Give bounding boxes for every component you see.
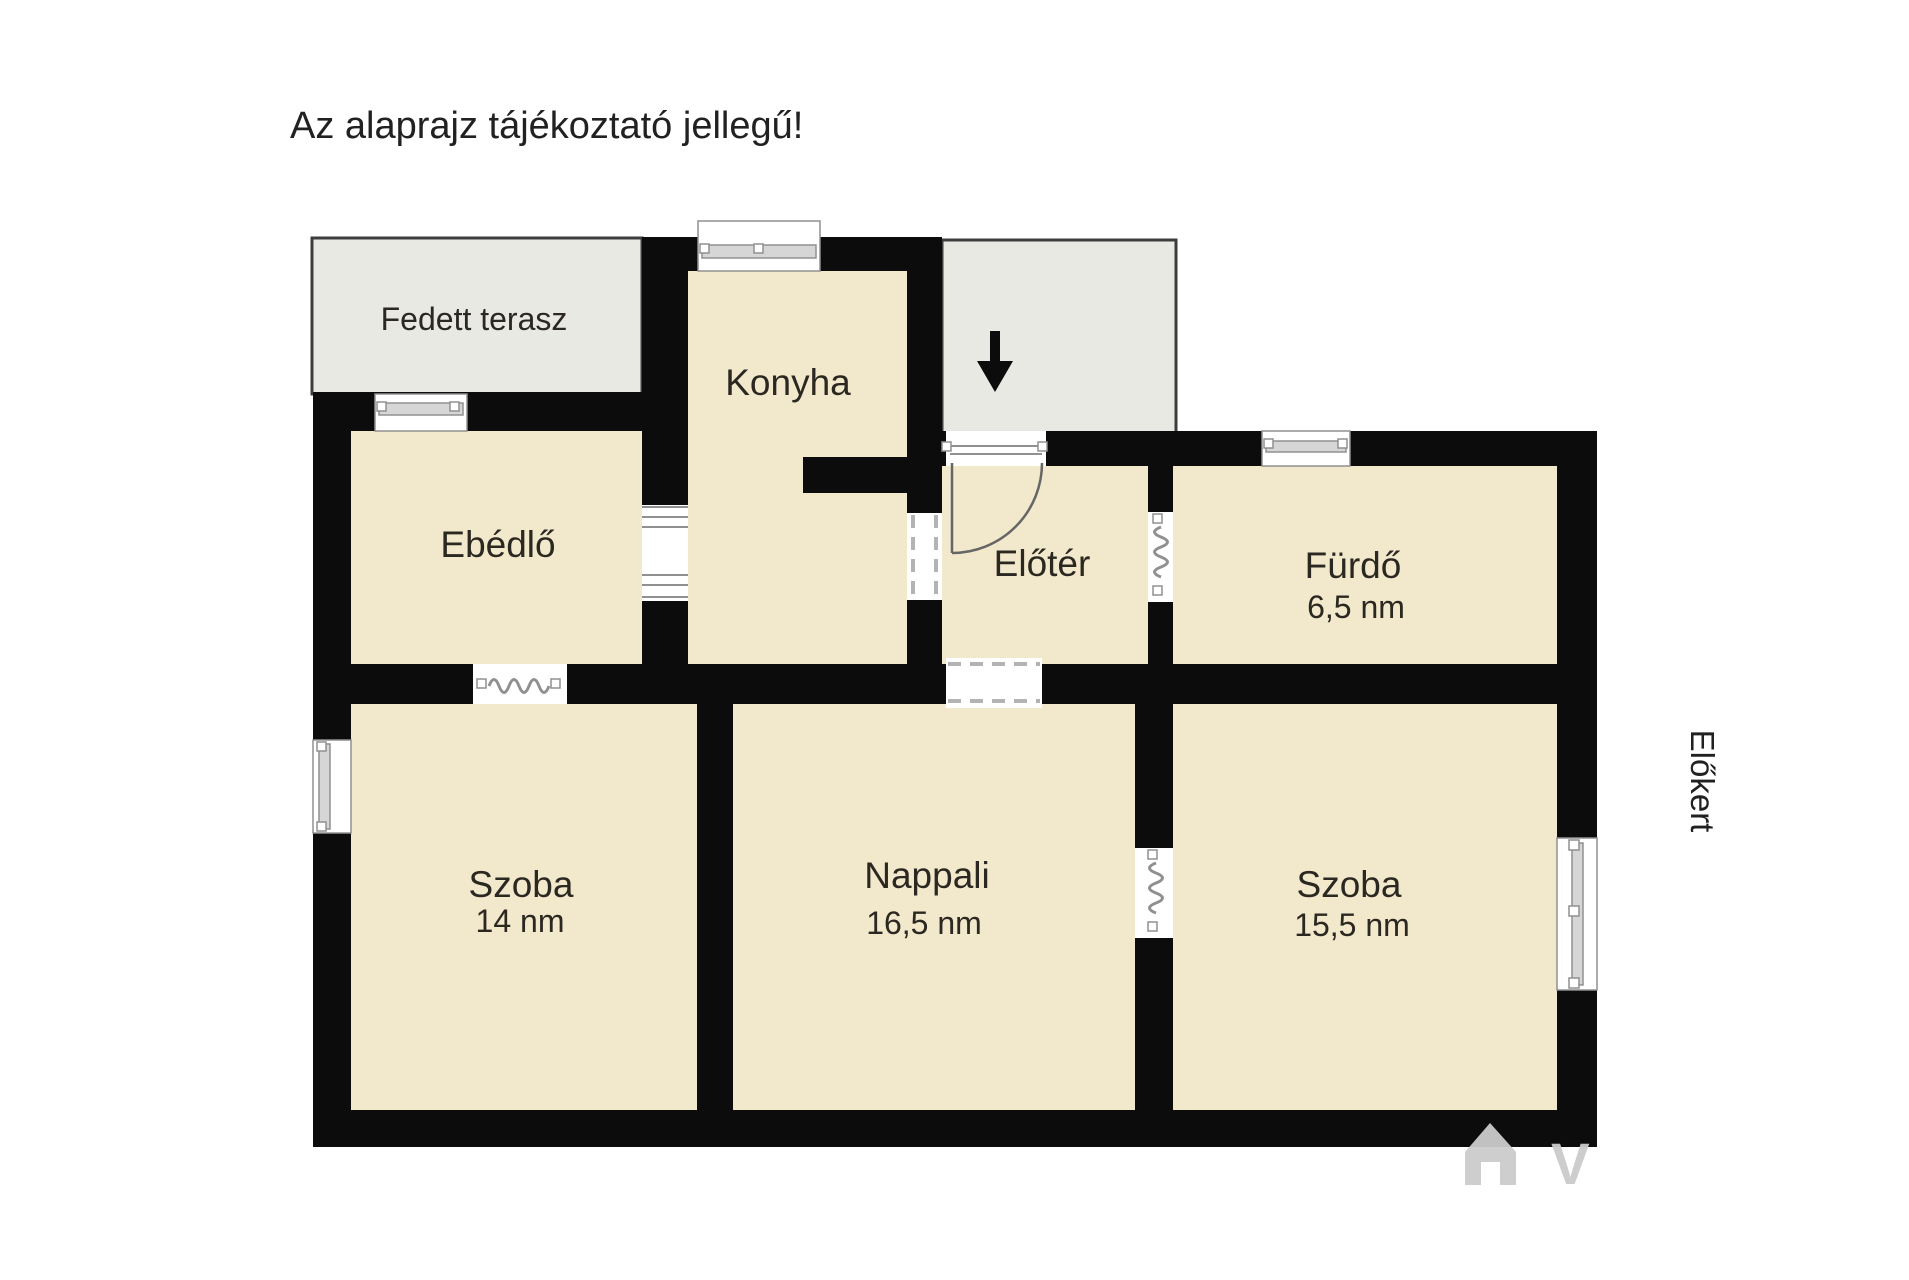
label-kitchen: Konyha [725,362,851,403]
dining-kitchen-hatch-window [642,505,688,601]
label-terrace: Fedett terasz [381,301,568,337]
wall-terrace-bottom [313,392,644,431]
label-room-right: Szoba [1297,864,1402,905]
label-dining: Ebédlő [440,524,555,565]
watermark-letter: V [1551,1132,1590,1197]
room-right-window [1557,838,1597,990]
wall-kitchen-stub [803,457,907,493]
living-roomright-opening [1135,848,1173,938]
label-living-area: 16,5 nm [866,905,982,941]
wall-kitchen-hall [907,260,942,666]
label-room-left: Szoba [469,864,574,905]
room-left-window [313,740,351,833]
hall-living-open-passage [946,658,1042,708]
label-hall: Előtér [994,543,1091,584]
label-front-garden: Előkert [1684,730,1721,833]
wall-outer-bottom [313,1110,1597,1147]
wall-outer-right [1557,431,1597,1147]
label-room-left-area: 14 nm [476,903,565,939]
label-bathroom-area: 6,5 nm [1307,589,1405,625]
floor-plan-page: Az alaprajz tájékoztató jellegű! Fedett … [0,0,1909,1280]
plan-disclaimer-title: Az alaprajz tájékoztató jellegű! [290,105,803,147]
entrance-porch-area [942,240,1176,433]
label-bathroom: Fürdő [1305,545,1402,586]
wall-roomleft-living [697,700,733,1147]
dining-roomleft-opening [473,664,567,704]
kitchen-hall-open-passage [907,513,942,600]
label-room-right-area: 15,5 nm [1294,907,1410,943]
floor-plan-svg: Az alaprajz tájékoztató jellegű! Fedett … [0,0,1909,1280]
bathroom-top-window [1262,431,1350,466]
hall-bathroom-opening [1148,512,1173,602]
label-living: Nappali [864,855,989,896]
kitchen-top-window [698,221,820,271]
dining-top-window [375,394,467,431]
wall-dining-kitchen [642,260,688,666]
